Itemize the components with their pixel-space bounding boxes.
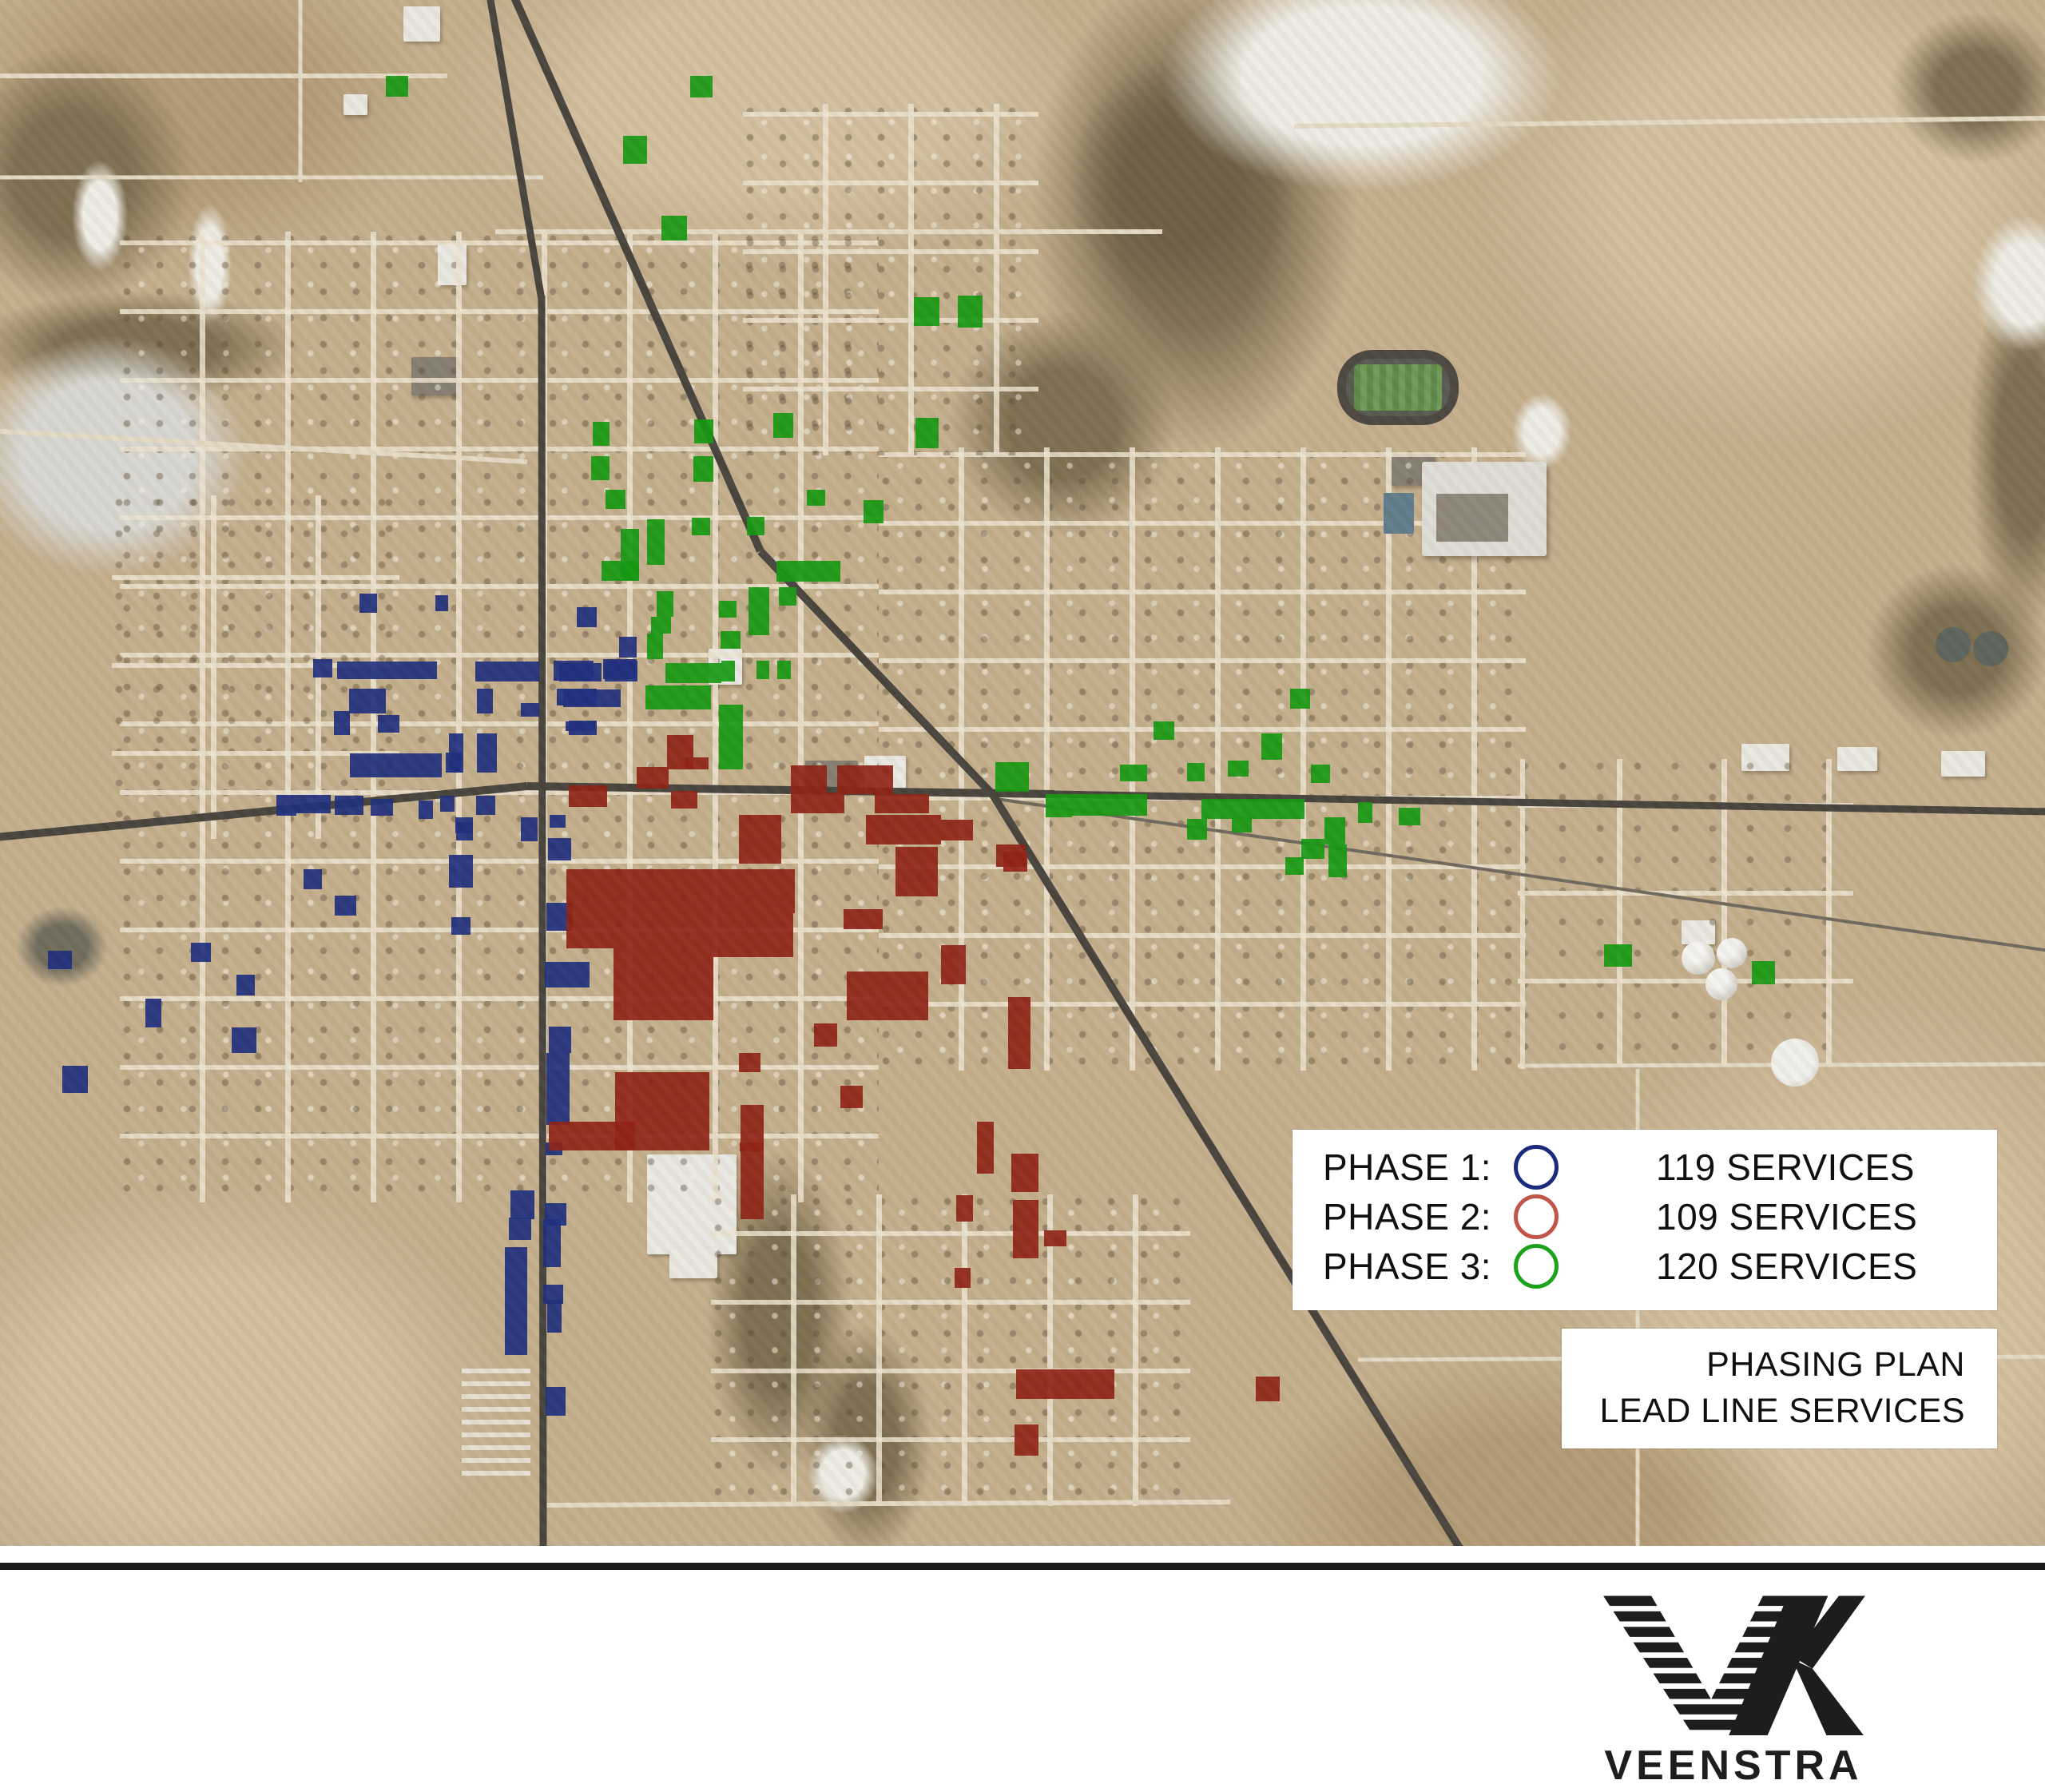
- phase2-parcel: [1256, 1377, 1280, 1401]
- terrain-field: [447, 0, 1102, 272]
- footer-band: VEENSTRA & KIMM INC.: [0, 1546, 2045, 1792]
- phase1-parcel: [566, 721, 595, 731]
- terrain-snow: [1973, 216, 2045, 352]
- phase2-parcel: [549, 1122, 635, 1150]
- phase3-parcel: [1187, 819, 1207, 840]
- phase1-parcel: [435, 595, 448, 611]
- phase2-parcel: [866, 815, 941, 844]
- street-grid-west: [120, 232, 879, 1202]
- football-field: [1354, 364, 1442, 411]
- phase3-parcel: [756, 661, 769, 679]
- phase1-parcel: [62, 1066, 88, 1093]
- phase1-parcel: [477, 689, 493, 713]
- phase1-parcel: [577, 607, 597, 627]
- phase3-parcel: [593, 422, 610, 446]
- phase2-parcel: [1044, 1230, 1066, 1246]
- street: [0, 429, 527, 464]
- phase1-parcel: [456, 822, 473, 840]
- phase1-parcel: [547, 1300, 562, 1333]
- phase1-parcel: [546, 1142, 562, 1155]
- phase3-parcel: [864, 500, 884, 523]
- phase2-parcel: [740, 1142, 764, 1151]
- phase1-parcel: [455, 817, 473, 833]
- phase1-parcel: [554, 661, 594, 681]
- street: [543, 1500, 1230, 1508]
- phase3-parcel: [1301, 839, 1324, 859]
- terrain-field: [1478, 0, 2045, 447]
- phase3-parcel: [1285, 857, 1304, 875]
- phase2-parcel: [1003, 852, 1027, 872]
- street-grid-nw-neighborhood: [112, 495, 399, 839]
- terrain-bw: [1837, 747, 1877, 771]
- phase1-count: 119 SERVICES: [1582, 1146, 1997, 1189]
- terrain-bd: [411, 357, 459, 395]
- phase3-parcel: [995, 762, 1029, 792]
- plan-sheet: PHASE 1: 119 SERVICES PHASE 2: 109 SERVI…: [0, 0, 2045, 1792]
- phase3-parcel: [779, 587, 796, 606]
- phase2-parcel: [847, 971, 928, 1020]
- road: [507, 0, 764, 553]
- phase1-parcel: [546, 1053, 570, 1125]
- phase3-parcel: [773, 413, 793, 438]
- phase2-parcel: [615, 1072, 709, 1150]
- terrain-field2: [0, 0, 431, 272]
- phase3-parcel: [1187, 763, 1205, 781]
- terrain-bd: [805, 761, 858, 791]
- phase1-parcel: [545, 1203, 566, 1226]
- terrain-snow: [188, 204, 232, 324]
- phase2-parcel: [671, 791, 697, 809]
- street: [1294, 116, 2045, 129]
- terrain-bw: [647, 1154, 737, 1254]
- phase3-parcel: [621, 529, 639, 581]
- phase1-parcel: [546, 903, 573, 931]
- phase3-count: 120 SERVICES: [1582, 1245, 1997, 1288]
- football-stadium: [1337, 350, 1459, 425]
- phase1-parcel: [550, 815, 566, 828]
- phase1-parcel: [605, 661, 637, 681]
- phase2-parcel: [741, 1105, 764, 1219]
- phase1-parcel: [296, 795, 331, 813]
- phase1-parcel: [48, 951, 72, 969]
- street-grid-south: [711, 1194, 1190, 1506]
- phase2-parcel: [685, 757, 709, 769]
- phase2-parcel: [1016, 1369, 1114, 1399]
- border-rule: [0, 1563, 2045, 1570]
- terrain-wood: [799, 1318, 935, 1546]
- phase2-parcel: [667, 735, 693, 769]
- phase2-parcel: [977, 1122, 994, 1174]
- terrain-wood: [703, 1142, 855, 1486]
- phase1-parcel: [603, 659, 637, 679]
- phase2-parcel: [739, 1053, 760, 1072]
- phase2-parcel: [955, 1268, 971, 1288]
- phase3-parcel: [807, 490, 825, 506]
- terrain-bw: [709, 649, 742, 685]
- phase1-parcel: [475, 662, 539, 681]
- terrain-water: [0, 336, 248, 575]
- street: [299, 0, 303, 182]
- phase3-parcel: [1072, 794, 1110, 816]
- phase3-parcel: [749, 587, 769, 635]
- terrain-wood: [943, 304, 1182, 543]
- phase3-parcel: [1232, 817, 1252, 832]
- phase2-parcel: [566, 913, 613, 948]
- phase1-parcel: [334, 711, 350, 735]
- phase1-parcel: [232, 1027, 256, 1053]
- terrain-wood: [0, 40, 200, 312]
- phase2-ring-icon: [1514, 1194, 1559, 1239]
- phase1-parcel: [476, 796, 495, 815]
- phase1-ring-icon: [1514, 1145, 1559, 1190]
- phase3-parcel: [1201, 799, 1304, 819]
- phase1-parcel: [543, 1285, 563, 1304]
- company-name-line1: VEENSTRA: [1586, 1742, 1881, 1790]
- phase1-parcel: [313, 659, 332, 677]
- title-block: PHASING PLAN LEAD LINE SERVICES: [1562, 1329, 1997, 1448]
- phase2-parcel: [996, 844, 1026, 867]
- phase3-parcel: [1311, 765, 1330, 783]
- phase3-parcel: [645, 685, 711, 709]
- phase2-label: PHASE 2:: [1323, 1195, 1503, 1238]
- phase3-parcel: [1110, 794, 1147, 816]
- phase2-parcel: [827, 793, 844, 813]
- trailer-park: [462, 1368, 530, 1476]
- terrain-wood: [1885, 8, 2045, 168]
- terrain-wood: [0, 288, 312, 407]
- phase1-parcel: [359, 594, 377, 613]
- phase1-parcel: [335, 796, 363, 815]
- street: [1520, 759, 1525, 1069]
- phase3-parcel: [776, 561, 840, 582]
- phase1-parcel: [510, 1190, 534, 1219]
- phase2-parcel: [895, 847, 938, 896]
- phase2-parcel: [791, 765, 827, 813]
- phase3-parcel: [386, 76, 408, 97]
- phase1-parcel: [509, 1218, 531, 1240]
- phase1-parcel: [419, 801, 433, 819]
- phase3-parcel: [602, 561, 639, 581]
- terrain-bw: [343, 94, 367, 115]
- phase1-parcel: [521, 817, 538, 841]
- street: [0, 74, 447, 78]
- phase2-parcel: [941, 820, 973, 840]
- phase1-parcel: [440, 796, 455, 812]
- phase2-count: 109 SERVICES: [1582, 1195, 1997, 1238]
- phase3-parcel: [623, 136, 647, 164]
- vk-monogram-icon: [1602, 1582, 1865, 1737]
- phase3-parcel: [591, 456, 610, 480]
- phase2-parcel: [840, 1086, 863, 1108]
- phase3-parcel: [719, 705, 743, 769]
- street: [0, 176, 543, 180]
- phase3-parcel: [657, 591, 673, 617]
- phase1-parcel: [619, 637, 637, 658]
- phase1-parcel: [559, 663, 602, 681]
- street: [997, 797, 2045, 952]
- road: [486, 0, 546, 300]
- phase1-parcel: [276, 795, 296, 816]
- terrain-bw: [864, 756, 906, 791]
- phase2-parcel: [713, 913, 793, 957]
- phase2-parcel: [837, 765, 893, 794]
- phase3-parcel: [1328, 844, 1347, 877]
- terrain-snow: [1162, 0, 1562, 192]
- terrain-wood: [1965, 256, 2045, 639]
- road: [0, 782, 527, 841]
- phase3-parcel: [1358, 802, 1372, 823]
- phase3-parcel: [719, 601, 737, 618]
- road: [527, 782, 1054, 798]
- phase3-parcel: [1261, 733, 1282, 760]
- road: [1054, 791, 2045, 816]
- terrain-snow: [72, 160, 128, 272]
- phase1-parcel: [548, 838, 571, 860]
- company-logo: VEENSTRA & KIMM INC.: [1586, 1582, 1881, 1792]
- phase3-label: PHASE 3:: [1323, 1245, 1503, 1288]
- phase1-parcel: [191, 943, 211, 962]
- phase2-parcel: [569, 785, 607, 807]
- phase1-parcel: [477, 733, 497, 773]
- title-line1: PHASING PLAN: [1562, 1341, 1965, 1388]
- phase2-parcel: [1015, 1424, 1038, 1456]
- phase2-parcel: [875, 794, 929, 813]
- legend-row-phase1: PHASE 1: 119 SERVICES: [1323, 1142, 1997, 1192]
- phase3-parcel: [958, 296, 983, 328]
- terrain-wood2: [1062, 48, 1302, 320]
- phase2-parcel: [637, 767, 669, 789]
- legend: PHASE 1: 119 SERVICES PHASE 2: 109 SERVI…: [1293, 1130, 1997, 1310]
- phase1-parcel: [449, 855, 473, 888]
- phase2-parcel: [613, 913, 713, 1020]
- phase3-parcel: [1752, 961, 1775, 984]
- phase3-parcel: [647, 634, 663, 659]
- phase3-parcel: [694, 419, 713, 443]
- phase1-parcel: [145, 999, 161, 1027]
- phase1-label: PHASE 1:: [1323, 1146, 1503, 1189]
- phase1-parcel: [543, 1219, 561, 1267]
- phase1-parcel: [451, 917, 471, 935]
- terrain-snow: [807, 1434, 879, 1514]
- phase3-parcel: [692, 518, 710, 535]
- phase3-parcel: [721, 661, 735, 681]
- phase3-parcel: [693, 456, 713, 482]
- road: [538, 296, 547, 1546]
- phase1-parcel: [446, 753, 462, 773]
- phase3-parcel: [721, 631, 741, 649]
- terrain-bw: [403, 6, 440, 42]
- phase1-parcel: [349, 689, 386, 713]
- phase3-parcel: [777, 661, 791, 679]
- phase3-parcel: [661, 216, 687, 240]
- phase1-parcel: [563, 689, 621, 707]
- storage-tank: [1771, 1039, 1819, 1087]
- phase1-parcel: [569, 721, 597, 735]
- street-grid-north: [743, 104, 1038, 455]
- grain-silos: [1682, 933, 1753, 1005]
- phase1-parcel: [304, 869, 322, 889]
- phase1-parcel: [449, 733, 463, 773]
- phase1-parcel: [236, 975, 255, 995]
- terrain-snow: [1512, 393, 1571, 470]
- phase1-parcel: [549, 1027, 571, 1053]
- phase3-parcel: [1228, 761, 1249, 777]
- phase3-parcel: [1120, 765, 1147, 781]
- phase3-parcel: [1324, 817, 1345, 844]
- terrain-bw: [669, 1248, 717, 1278]
- legend-row-phase2: PHASE 2: 109 SERVICES: [1323, 1192, 1997, 1242]
- terrain-bw: [1741, 744, 1789, 771]
- terrain-bw: [438, 244, 467, 285]
- phase1-parcel: [371, 799, 393, 816]
- phase3-parcel: [1399, 808, 1420, 825]
- title-line2: LEAD LINE SERVICES: [1562, 1388, 1965, 1434]
- phase1-parcel: [521, 703, 539, 717]
- street: [495, 229, 1162, 234]
- phase3-parcel: [665, 663, 721, 683]
- terrain-wood: [1022, 0, 1366, 463]
- phase3-parcel: [647, 519, 665, 565]
- road: [757, 549, 995, 798]
- phase1-parcel: [505, 1247, 527, 1355]
- phase1-parcel: [546, 1387, 566, 1416]
- phase2-parcel: [566, 869, 795, 913]
- phase2-parcel: [844, 909, 883, 929]
- phase2-parcel: [814, 1023, 837, 1047]
- phase3-parcel: [1604, 944, 1632, 967]
- phase1-parcel: [378, 715, 399, 733]
- phase3-parcel: [606, 490, 625, 509]
- phase2-parcel: [956, 1195, 973, 1222]
- terrain-bw: [1941, 751, 1985, 777]
- phase3-parcel: [1154, 721, 1174, 740]
- phase2-parcel: [941, 945, 966, 984]
- tennis-courts: [1384, 493, 1414, 534]
- phase3-parcel: [690, 76, 713, 97]
- phase2-parcel: [1011, 1154, 1038, 1192]
- aerial-map: PHASE 1: 119 SERVICES PHASE 2: 109 SERVI…: [0, 0, 2045, 1546]
- phase3-parcel: [915, 418, 939, 448]
- street-grid-fareast: [1518, 759, 1853, 1067]
- terrain-field: [0, 1182, 511, 1546]
- phase1-parcel: [545, 962, 590, 987]
- phase3-parcel: [651, 617, 671, 634]
- phase3-parcel: [914, 297, 939, 326]
- phase3-parcel: [1290, 689, 1310, 709]
- school-building: [1422, 462, 1547, 556]
- phase1-parcel: [335, 896, 356, 916]
- phase3-parcel: [1046, 794, 1072, 817]
- phase1-parcel: [557, 689, 597, 705]
- legend-row-phase3: PHASE 3: 120 SERVICES: [1323, 1242, 1997, 1291]
- phase1-parcel: [337, 662, 437, 679]
- phase2-parcel: [1008, 997, 1030, 1069]
- phase3-parcel: [747, 517, 764, 535]
- terrain-water2: [16, 907, 108, 987]
- phase1-parcel: [350, 753, 442, 777]
- phase3-ring-icon: [1514, 1244, 1559, 1289]
- phase2-parcel: [739, 815, 781, 864]
- phase2-parcel: [1013, 1200, 1038, 1258]
